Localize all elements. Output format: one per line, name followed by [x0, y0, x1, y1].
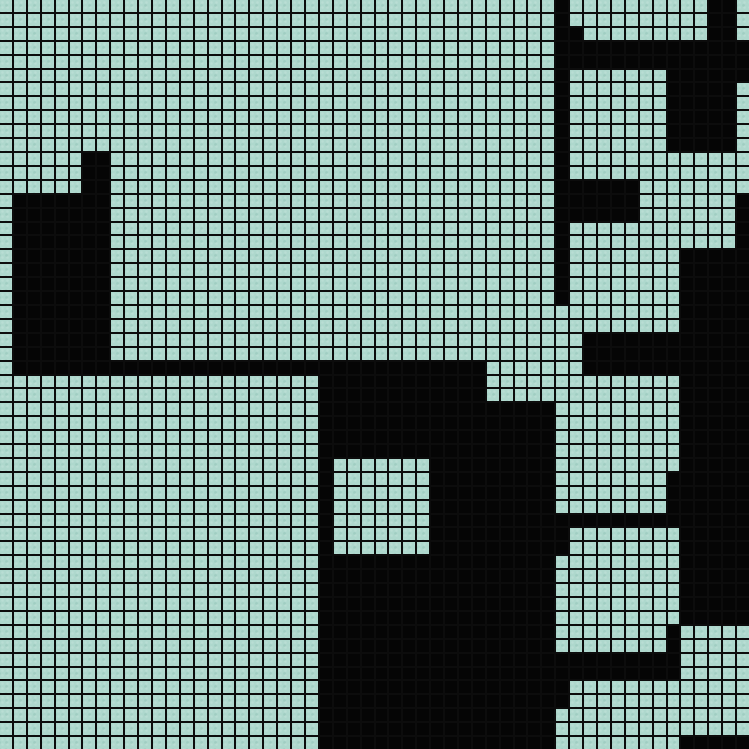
open-tile[interactable]: [111, 250, 123, 262]
open-tile[interactable]: [362, 264, 374, 276]
wall-tile[interactable]: [56, 306, 68, 318]
wall-tile[interactable]: [501, 570, 513, 582]
wall-tile[interactable]: [556, 209, 568, 221]
open-tile[interactable]: [709, 668, 721, 680]
open-tile[interactable]: [515, 292, 527, 304]
open-tile[interactable]: [598, 695, 610, 707]
wall-tile[interactable]: [97, 348, 109, 360]
open-tile[interactable]: [320, 181, 332, 193]
open-tile[interactable]: [0, 362, 12, 374]
open-tile[interactable]: [654, 153, 666, 165]
open-tile[interactable]: [654, 445, 666, 457]
open-tile[interactable]: [236, 139, 248, 151]
open-tile[interactable]: [264, 320, 276, 332]
wall-tile[interactable]: [695, 139, 707, 151]
open-tile[interactable]: [264, 709, 276, 721]
open-tile[interactable]: [28, 487, 40, 499]
open-tile[interactable]: [167, 42, 179, 54]
open-tile[interactable]: [320, 153, 332, 165]
open-tile[interactable]: [111, 348, 123, 360]
open-tile[interactable]: [459, 14, 471, 26]
wall-tile[interactable]: [723, 612, 735, 624]
open-tile[interactable]: [626, 487, 638, 499]
wall-tile[interactable]: [737, 389, 749, 401]
open-tile[interactable]: [306, 515, 318, 527]
open-tile[interactable]: [83, 487, 95, 499]
open-tile[interactable]: [445, 278, 457, 290]
open-tile[interactable]: [320, 306, 332, 318]
open-tile[interactable]: [362, 111, 374, 123]
open-tile[interactable]: [0, 709, 12, 721]
wall-tile[interactable]: [70, 306, 82, 318]
wall-tile[interactable]: [389, 584, 401, 596]
open-tile[interactable]: [709, 181, 721, 193]
open-tile[interactable]: [376, 139, 388, 151]
open-tile[interactable]: [640, 320, 652, 332]
open-tile[interactable]: [97, 0, 109, 12]
open-tile[interactable]: [264, 125, 276, 137]
open-tile[interactable]: [181, 501, 193, 513]
wall-tile[interactable]: [445, 403, 457, 415]
open-tile[interactable]: [612, 250, 624, 262]
open-tile[interactable]: [195, 737, 207, 749]
wall-tile[interactable]: [528, 737, 540, 749]
open-tile[interactable]: [250, 584, 262, 596]
open-tile[interactable]: [348, 459, 360, 471]
open-tile[interactable]: [209, 153, 221, 165]
wall-tile[interactable]: [334, 417, 346, 429]
open-tile[interactable]: [584, 695, 596, 707]
wall-tile[interactable]: [501, 668, 513, 680]
wall-tile[interactable]: [584, 654, 596, 666]
wall-tile[interactable]: [320, 654, 332, 666]
wall-tile[interactable]: [139, 362, 151, 374]
open-tile[interactable]: [264, 668, 276, 680]
open-tile[interactable]: [306, 487, 318, 499]
open-tile[interactable]: [570, 153, 582, 165]
wall-tile[interactable]: [83, 250, 95, 262]
open-tile[interactable]: [737, 668, 749, 680]
open-tile[interactable]: [515, 167, 527, 179]
open-tile[interactable]: [515, 334, 527, 346]
open-tile[interactable]: [431, 125, 443, 137]
open-tile[interactable]: [417, 306, 429, 318]
open-tile[interactable]: [83, 640, 95, 652]
wall-tile[interactable]: [70, 334, 82, 346]
open-tile[interactable]: [56, 42, 68, 54]
open-tile[interactable]: [612, 97, 624, 109]
wall-tile[interactable]: [417, 417, 429, 429]
open-tile[interactable]: [528, 28, 540, 40]
open-tile[interactable]: [584, 236, 596, 248]
wall-tile[interactable]: [389, 556, 401, 568]
open-tile[interactable]: [626, 737, 638, 749]
wall-tile[interactable]: [668, 348, 680, 360]
open-tile[interactable]: [14, 42, 26, 54]
wall-tile[interactable]: [681, 83, 693, 95]
open-tile[interactable]: [97, 42, 109, 54]
open-tile[interactable]: [528, 389, 540, 401]
open-tile[interactable]: [250, 42, 262, 54]
wall-tile[interactable]: [362, 640, 374, 652]
wall-tile[interactable]: [292, 362, 304, 374]
wall-tile[interactable]: [445, 445, 457, 457]
open-tile[interactable]: [654, 473, 666, 485]
open-tile[interactable]: [125, 695, 137, 707]
open-tile[interactable]: [83, 125, 95, 137]
open-tile[interactable]: [487, 28, 499, 40]
wall-tile[interactable]: [584, 56, 596, 68]
wall-tile[interactable]: [570, 42, 582, 54]
open-tile[interactable]: [181, 626, 193, 638]
open-tile[interactable]: [320, 209, 332, 221]
open-tile[interactable]: [570, 278, 582, 290]
open-tile[interactable]: [542, 376, 554, 388]
open-tile[interactable]: [598, 640, 610, 652]
open-tile[interactable]: [403, 181, 415, 193]
open-tile[interactable]: [167, 584, 179, 596]
wall-tile[interactable]: [598, 42, 610, 54]
open-tile[interactable]: [125, 278, 137, 290]
open-tile[interactable]: [153, 487, 165, 499]
open-tile[interactable]: [709, 195, 721, 207]
open-tile[interactable]: [28, 417, 40, 429]
wall-tile[interactable]: [459, 431, 471, 443]
open-tile[interactable]: [181, 0, 193, 12]
open-tile[interactable]: [292, 501, 304, 513]
open-tile[interactable]: [250, 14, 262, 26]
wall-tile[interactable]: [389, 654, 401, 666]
wall-tile[interactable]: [42, 264, 54, 276]
open-tile[interactable]: [417, 473, 429, 485]
open-tile[interactable]: [42, 431, 54, 443]
open-tile[interactable]: [709, 153, 721, 165]
open-tile[interactable]: [111, 723, 123, 735]
open-tile[interactable]: [417, 278, 429, 290]
wall-tile[interactable]: [376, 681, 388, 693]
open-tile[interactable]: [626, 153, 638, 165]
wall-tile[interactable]: [681, 292, 693, 304]
wall-tile[interactable]: [362, 584, 374, 596]
open-tile[interactable]: [181, 389, 193, 401]
wall-tile[interactable]: [83, 362, 95, 374]
open-tile[interactable]: [111, 195, 123, 207]
wall-tile[interactable]: [473, 417, 485, 429]
open-tile[interactable]: [209, 111, 221, 123]
open-tile[interactable]: [459, 209, 471, 221]
wall-tile[interactable]: [556, 250, 568, 262]
wall-tile[interactable]: [376, 626, 388, 638]
open-tile[interactable]: [14, 654, 26, 666]
open-tile[interactable]: [668, 153, 680, 165]
wall-tile[interactable]: [723, 56, 735, 68]
wall-tile[interactable]: [236, 362, 248, 374]
open-tile[interactable]: [97, 14, 109, 26]
open-tile[interactable]: [125, 376, 137, 388]
open-tile[interactable]: [223, 97, 235, 109]
open-tile[interactable]: [125, 626, 137, 638]
wall-tile[interactable]: [334, 723, 346, 735]
wall-tile[interactable]: [362, 417, 374, 429]
open-tile[interactable]: [181, 264, 193, 276]
wall-tile[interactable]: [723, 542, 735, 554]
wall-tile[interactable]: [348, 403, 360, 415]
open-tile[interactable]: [125, 306, 137, 318]
open-tile[interactable]: [0, 14, 12, 26]
open-tile[interactable]: [306, 264, 318, 276]
open-tile[interactable]: [195, 723, 207, 735]
open-tile[interactable]: [125, 459, 137, 471]
open-tile[interactable]: [334, 320, 346, 332]
wall-tile[interactable]: [487, 459, 499, 471]
open-tile[interactable]: [570, 640, 582, 652]
open-tile[interactable]: [598, 431, 610, 443]
wall-tile[interactable]: [431, 417, 443, 429]
open-tile[interactable]: [0, 376, 12, 388]
open-tile[interactable]: [348, 70, 360, 82]
wall-tile[interactable]: [125, 362, 137, 374]
open-tile[interactable]: [515, 223, 527, 235]
open-tile[interactable]: [737, 125, 749, 137]
wall-tile[interactable]: [473, 431, 485, 443]
open-tile[interactable]: [612, 695, 624, 707]
open-tile[interactable]: [556, 556, 568, 568]
wall-tile[interactable]: [542, 709, 554, 721]
open-tile[interactable]: [376, 195, 388, 207]
open-tile[interactable]: [376, 28, 388, 40]
open-tile[interactable]: [348, 320, 360, 332]
open-tile[interactable]: [14, 542, 26, 554]
open-tile[interactable]: [528, 167, 540, 179]
open-tile[interactable]: [306, 167, 318, 179]
open-tile[interactable]: [681, 223, 693, 235]
wall-tile[interactable]: [389, 362, 401, 374]
open-tile[interactable]: [167, 737, 179, 749]
open-tile[interactable]: [181, 681, 193, 693]
open-tile[interactable]: [417, 528, 429, 540]
open-tile[interactable]: [223, 56, 235, 68]
open-tile[interactable]: [167, 501, 179, 513]
open-tile[interactable]: [83, 417, 95, 429]
wall-tile[interactable]: [445, 737, 457, 749]
wall-tile[interactable]: [556, 42, 568, 54]
open-tile[interactable]: [195, 556, 207, 568]
wall-tile[interactable]: [389, 376, 401, 388]
open-tile[interactable]: [125, 570, 137, 582]
open-tile[interactable]: [626, 167, 638, 179]
open-tile[interactable]: [403, 83, 415, 95]
open-tile[interactable]: [125, 515, 137, 527]
wall-tile[interactable]: [515, 626, 527, 638]
open-tile[interactable]: [417, 42, 429, 54]
wall-tile[interactable]: [417, 362, 429, 374]
open-tile[interactable]: [487, 209, 499, 221]
open-tile[interactable]: [181, 28, 193, 40]
wall-tile[interactable]: [528, 681, 540, 693]
open-tile[interactable]: [681, 167, 693, 179]
wall-tile[interactable]: [570, 668, 582, 680]
open-tile[interactable]: [125, 250, 137, 262]
open-tile[interactable]: [111, 70, 123, 82]
open-tile[interactable]: [626, 459, 638, 471]
open-tile[interactable]: [153, 542, 165, 554]
wall-tile[interactable]: [681, 56, 693, 68]
open-tile[interactable]: [153, 83, 165, 95]
wall-tile[interactable]: [640, 42, 652, 54]
open-tile[interactable]: [139, 570, 151, 582]
open-tile[interactable]: [542, 56, 554, 68]
open-tile[interactable]: [125, 668, 137, 680]
open-tile[interactable]: [584, 737, 596, 749]
wall-tile[interactable]: [97, 362, 109, 374]
open-tile[interactable]: [139, 376, 151, 388]
open-tile[interactable]: [626, 556, 638, 568]
wall-tile[interactable]: [598, 668, 610, 680]
wall-tile[interactable]: [473, 487, 485, 499]
wall-tile[interactable]: [737, 236, 749, 248]
wall-tile[interactable]: [417, 681, 429, 693]
wall-tile[interactable]: [723, 70, 735, 82]
wall-tile[interactable]: [431, 501, 443, 513]
open-tile[interactable]: [153, 668, 165, 680]
wall-tile[interactable]: [83, 223, 95, 235]
wall-tile[interactable]: [83, 264, 95, 276]
open-tile[interactable]: [640, 542, 652, 554]
open-tile[interactable]: [334, 125, 346, 137]
open-tile[interactable]: [278, 0, 290, 12]
open-tile[interactable]: [0, 167, 12, 179]
open-tile[interactable]: [348, 42, 360, 54]
open-tile[interactable]: [598, 389, 610, 401]
open-tile[interactable]: [264, 334, 276, 346]
wall-tile[interactable]: [42, 278, 54, 290]
wall-tile[interactable]: [362, 737, 374, 749]
open-tile[interactable]: [473, 167, 485, 179]
open-tile[interactable]: [584, 556, 596, 568]
open-tile[interactable]: [278, 70, 290, 82]
open-tile[interactable]: [403, 209, 415, 221]
open-tile[interactable]: [181, 487, 193, 499]
open-tile[interactable]: [278, 42, 290, 54]
open-tile[interactable]: [153, 97, 165, 109]
open-tile[interactable]: [501, 70, 513, 82]
open-tile[interactable]: [445, 56, 457, 68]
open-tile[interactable]: [584, 320, 596, 332]
wall-tile[interactable]: [556, 528, 568, 540]
open-tile[interactable]: [612, 111, 624, 123]
open-tile[interactable]: [250, 292, 262, 304]
wall-tile[interactable]: [695, 125, 707, 137]
open-tile[interactable]: [445, 42, 457, 54]
open-tile[interactable]: [515, 70, 527, 82]
open-tile[interactable]: [737, 0, 749, 12]
open-tile[interactable]: [181, 417, 193, 429]
open-tile[interactable]: [681, 153, 693, 165]
open-tile[interactable]: [695, 668, 707, 680]
wall-tile[interactable]: [417, 695, 429, 707]
open-tile[interactable]: [236, 737, 248, 749]
wall-tile[interactable]: [445, 528, 457, 540]
open-tile[interactable]: [681, 668, 693, 680]
open-tile[interactable]: [153, 320, 165, 332]
open-tile[interactable]: [223, 723, 235, 735]
open-tile[interactable]: [626, 223, 638, 235]
wall-tile[interactable]: [515, 612, 527, 624]
open-tile[interactable]: [0, 403, 12, 415]
open-tile[interactable]: [250, 501, 262, 513]
open-tile[interactable]: [348, 473, 360, 485]
wall-tile[interactable]: [598, 362, 610, 374]
open-tile[interactable]: [389, 292, 401, 304]
open-tile[interactable]: [83, 473, 95, 485]
open-tile[interactable]: [501, 153, 513, 165]
wall-tile[interactable]: [348, 737, 360, 749]
wall-tile[interactable]: [320, 723, 332, 735]
open-tile[interactable]: [389, 167, 401, 179]
open-tile[interactable]: [528, 292, 540, 304]
wall-tile[interactable]: [556, 111, 568, 123]
open-tile[interactable]: [181, 556, 193, 568]
open-tile[interactable]: [153, 584, 165, 596]
open-tile[interactable]: [334, 528, 346, 540]
open-tile[interactable]: [139, 598, 151, 610]
open-tile[interactable]: [320, 264, 332, 276]
open-tile[interactable]: [167, 70, 179, 82]
wall-tile[interactable]: [362, 570, 374, 582]
wall-tile[interactable]: [640, 515, 652, 527]
open-tile[interactable]: [556, 403, 568, 415]
open-tile[interactable]: [306, 640, 318, 652]
wall-tile[interactable]: [723, 515, 735, 527]
open-tile[interactable]: [668, 306, 680, 318]
open-tile[interactable]: [654, 626, 666, 638]
open-tile[interactable]: [695, 626, 707, 638]
open-tile[interactable]: [584, 264, 596, 276]
open-tile[interactable]: [0, 542, 12, 554]
wall-tile[interactable]: [654, 668, 666, 680]
wall-tile[interactable]: [83, 334, 95, 346]
wall-tile[interactable]: [445, 473, 457, 485]
open-tile[interactable]: [70, 389, 82, 401]
open-tile[interactable]: [0, 292, 12, 304]
wall-tile[interactable]: [501, 431, 513, 443]
open-tile[interactable]: [654, 139, 666, 151]
open-tile[interactable]: [570, 111, 582, 123]
wall-tile[interactable]: [334, 570, 346, 582]
open-tile[interactable]: [737, 723, 749, 735]
open-tile[interactable]: [570, 167, 582, 179]
wall-tile[interactable]: [97, 236, 109, 248]
open-tile[interactable]: [167, 487, 179, 499]
open-tile[interactable]: [97, 389, 109, 401]
open-tile[interactable]: [264, 445, 276, 457]
open-tile[interactable]: [83, 445, 95, 457]
open-tile[interactable]: [542, 111, 554, 123]
open-tile[interactable]: [570, 681, 582, 693]
open-tile[interactable]: [139, 668, 151, 680]
open-tile[interactable]: [598, 292, 610, 304]
wall-tile[interactable]: [737, 320, 749, 332]
open-tile[interactable]: [626, 320, 638, 332]
wall-tile[interactable]: [389, 431, 401, 443]
open-tile[interactable]: [209, 14, 221, 26]
open-tile[interactable]: [584, 153, 596, 165]
open-tile[interactable]: [501, 97, 513, 109]
open-tile[interactable]: [709, 209, 721, 221]
wall-tile[interactable]: [403, 431, 415, 443]
open-tile[interactable]: [209, 487, 221, 499]
wall-tile[interactable]: [626, 195, 638, 207]
